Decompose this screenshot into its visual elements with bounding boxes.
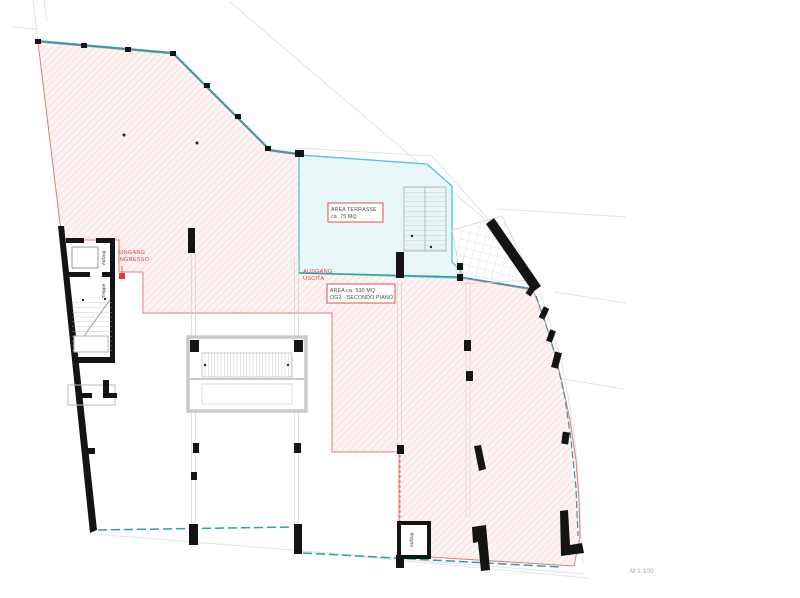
stair-dot [430, 246, 432, 248]
exit-label-line1: AUSGANG [303, 269, 332, 275]
exit-label-line2: USCITA [303, 276, 324, 282]
stair-dot [287, 364, 289, 366]
bottom-pier [189, 524, 198, 545]
stair-dot [82, 299, 84, 301]
construction-line [497, 209, 626, 217]
construction-line [44, 0, 47, 22]
stair-column [294, 340, 303, 352]
elevator-car [72, 247, 98, 268]
wall-stub [87, 448, 95, 454]
entrance-marker [119, 273, 125, 279]
elevator-wall [66, 272, 90, 277]
stair-dot [104, 298, 106, 300]
elevator-wall [66, 238, 84, 243]
central-stair-treads [202, 353, 292, 377]
elevator-lower-walls [399, 523, 429, 557]
edge-marker [170, 51, 176, 56]
stair-column [190, 340, 199, 352]
bottom-pier [294, 524, 302, 554]
central-stair [188, 337, 306, 411]
terrace-stair [404, 187, 446, 251]
wall-stub [82, 393, 92, 398]
survey-dot [123, 134, 126, 137]
elevator-upper-label: Aufzug [101, 250, 106, 265]
floor-area-line1: AREA ca. 530 MQ [330, 288, 375, 294]
elevator-lower-foot [396, 555, 404, 568]
edge-marker [204, 83, 210, 88]
edge-marker [265, 146, 271, 151]
core-wall [77, 357, 115, 363]
edge-marker [81, 43, 87, 48]
elevator-lower-label: Aufzug [409, 532, 414, 547]
column [294, 443, 301, 453]
column [464, 340, 471, 351]
survey-dot [196, 142, 199, 145]
column [397, 445, 404, 454]
column [193, 443, 199, 453]
main-floor-area [38, 42, 580, 566]
stair-dot [204, 364, 206, 366]
construction-line [296, 148, 432, 156]
terrace-area-line2: ca. 75 MQ [331, 214, 357, 220]
edge-marker [125, 47, 131, 52]
stair-upper-label: Treppe [101, 283, 106, 298]
scale-note: M 1:100 [630, 568, 654, 575]
edge-marker [35, 39, 41, 44]
column [396, 252, 404, 278]
floor-area-line2: OG2 - SECONDO PIANO [330, 295, 393, 301]
entrance-label-line1: EINGANG [118, 250, 145, 256]
construction-line [557, 378, 624, 389]
column [457, 263, 463, 270]
construction-line [13, 27, 36, 29]
left-core: Aufzug Treppe [58, 226, 117, 533]
column [188, 228, 195, 253]
floor-plan-canvas: Aufzug Treppe [0, 0, 800, 598]
construction-line [33, 0, 38, 41]
column [466, 371, 473, 381]
stair-dot [411, 235, 413, 237]
column [457, 274, 463, 281]
edge-marker [235, 114, 241, 119]
construction-line [554, 292, 626, 303]
edge-marker [295, 150, 304, 157]
core-stair-landing [74, 336, 108, 352]
entrance-label-line2: INGRESSO [118, 257, 150, 263]
elevator-wall [102, 272, 115, 277]
column [191, 472, 197, 480]
central-stair-void [202, 384, 292, 404]
floor-plan-page: Aufzug Treppe [0, 0, 800, 598]
terrace-area-line1: AREA TERRASSE [331, 207, 377, 213]
